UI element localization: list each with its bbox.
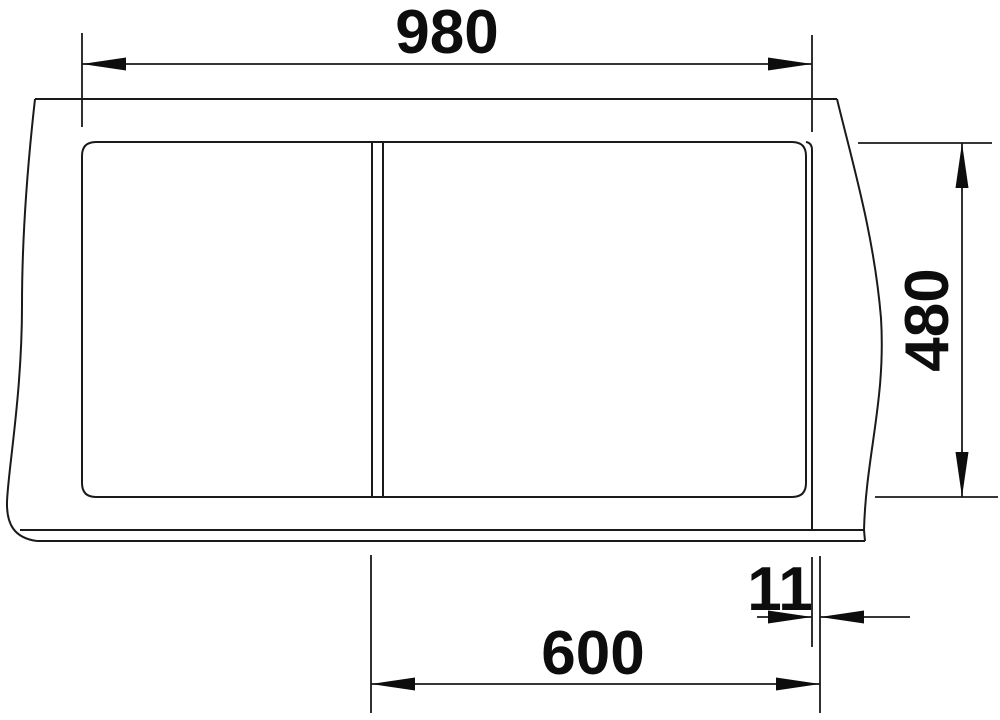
cabinet-dim-label: 600 — [541, 619, 644, 688]
offset-dim-label: 11 — [747, 555, 813, 624]
width-dim-label: 980 — [395, 0, 498, 67]
sink-rim-outline — [82, 142, 806, 497]
cabinet-dim-arrow-right — [776, 678, 820, 691]
dim-overall-depth: 480 — [858, 143, 998, 497]
worktop-outline — [7, 99, 882, 541]
cabinet-dim-arrow-left — [371, 678, 415, 691]
depth-dim-label: 480 — [893, 268, 962, 371]
dim-edge-offset: 11 — [747, 555, 910, 647]
depth-dim-arrow-bottom — [956, 452, 969, 497]
left-break-line — [7, 99, 37, 541]
dim-overall-width: 980 — [82, 0, 812, 132]
sink-rim — [82, 142, 812, 530]
technical-drawing-canvas: 980 480 600 11 — [0, 0, 1000, 720]
width-dim-arrow-right — [768, 58, 812, 71]
depth-dim-arrow-top — [956, 143, 969, 188]
right-break-line — [837, 99, 882, 541]
width-dim-arrow-left — [82, 58, 126, 71]
offset-dim-arrow-right — [820, 611, 864, 624]
sink-installation-drawing: 980 480 600 11 — [0, 0, 1000, 720]
